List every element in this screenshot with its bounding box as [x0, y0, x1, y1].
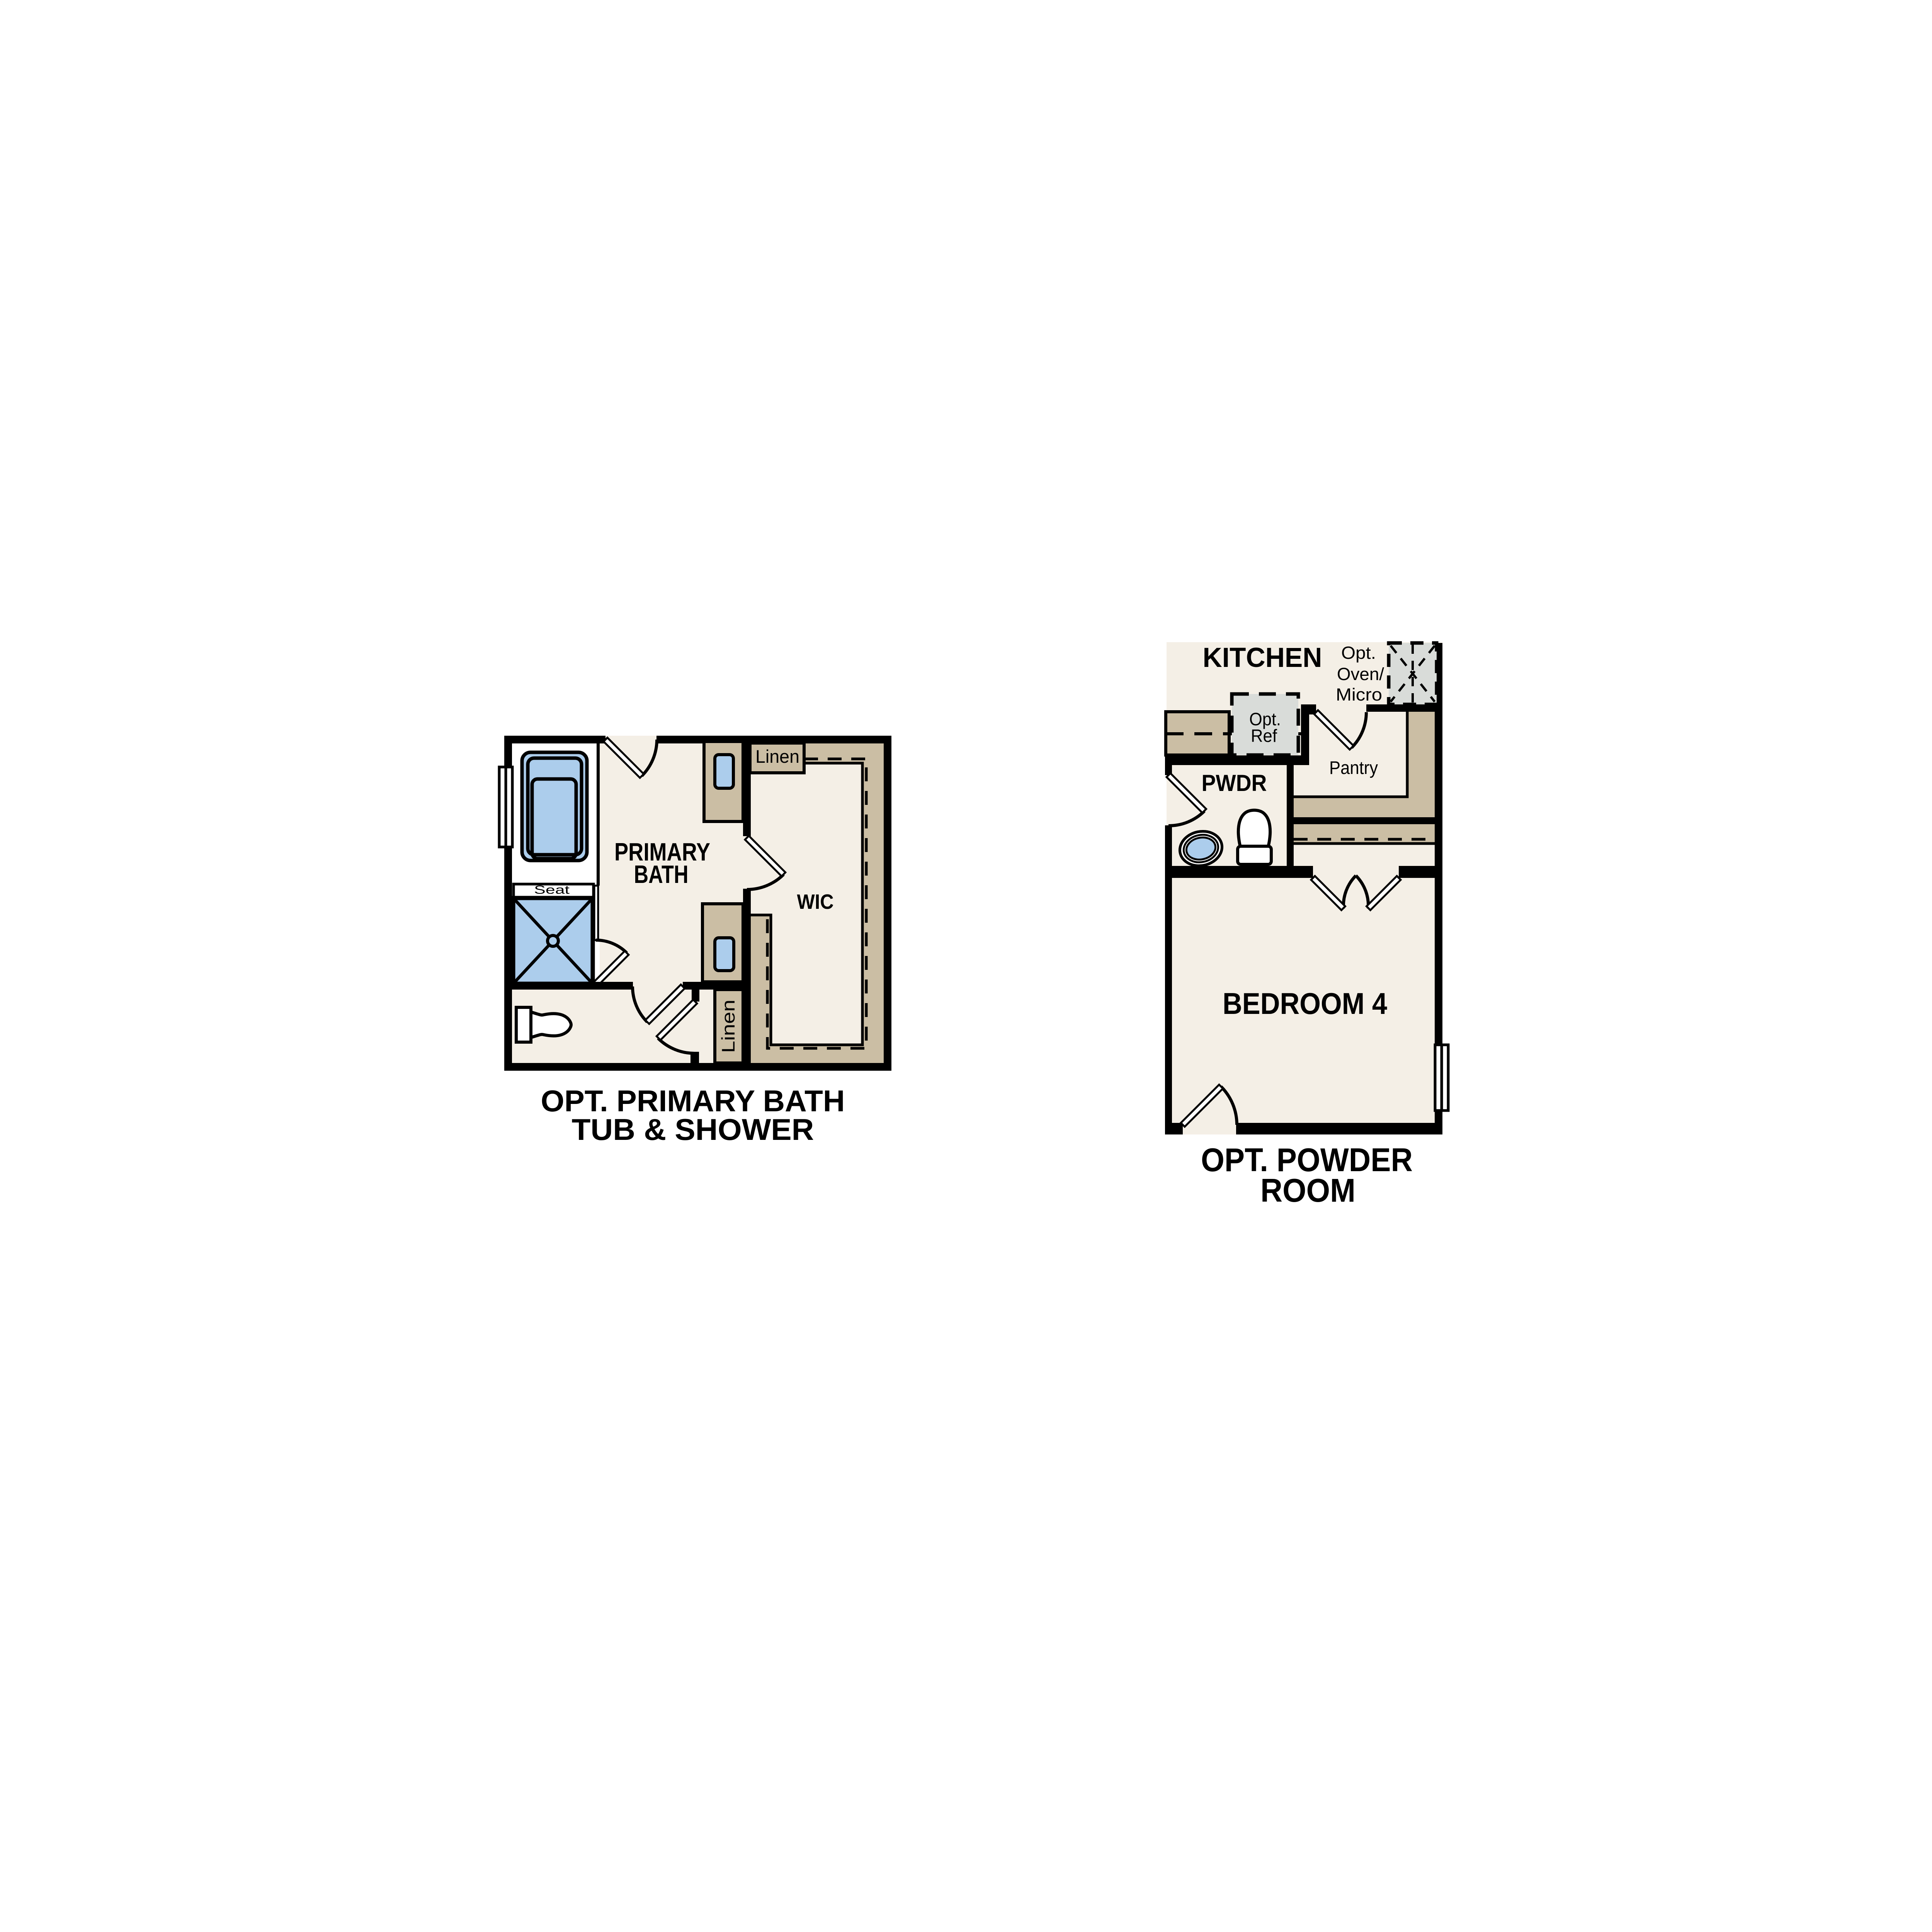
- svg-text:Ref: Ref: [1251, 726, 1277, 746]
- svg-text:Seat: Seat: [534, 883, 570, 896]
- svg-text:BEDROOM 4: BEDROOM 4: [1223, 986, 1387, 1020]
- svg-text:TUB & SHOWER: TUB & SHOWER: [572, 1112, 814, 1146]
- svg-text:Linen: Linen: [755, 746, 799, 767]
- svg-text:Oven/: Oven/: [1337, 664, 1384, 684]
- svg-text:KITCHEN: KITCHEN: [1203, 643, 1322, 673]
- svg-text:Pantry: Pantry: [1329, 757, 1378, 778]
- svg-text:PWDR: PWDR: [1202, 770, 1267, 796]
- svg-text:Linen: Linen: [718, 1000, 738, 1053]
- svg-text:WIC: WIC: [797, 890, 834, 913]
- svg-text:ROOM: ROOM: [1260, 1172, 1355, 1209]
- svg-text:BATH: BATH: [634, 860, 689, 888]
- svg-text:Micro: Micro: [1336, 685, 1382, 704]
- svg-text:Opt.: Opt.: [1341, 643, 1376, 663]
